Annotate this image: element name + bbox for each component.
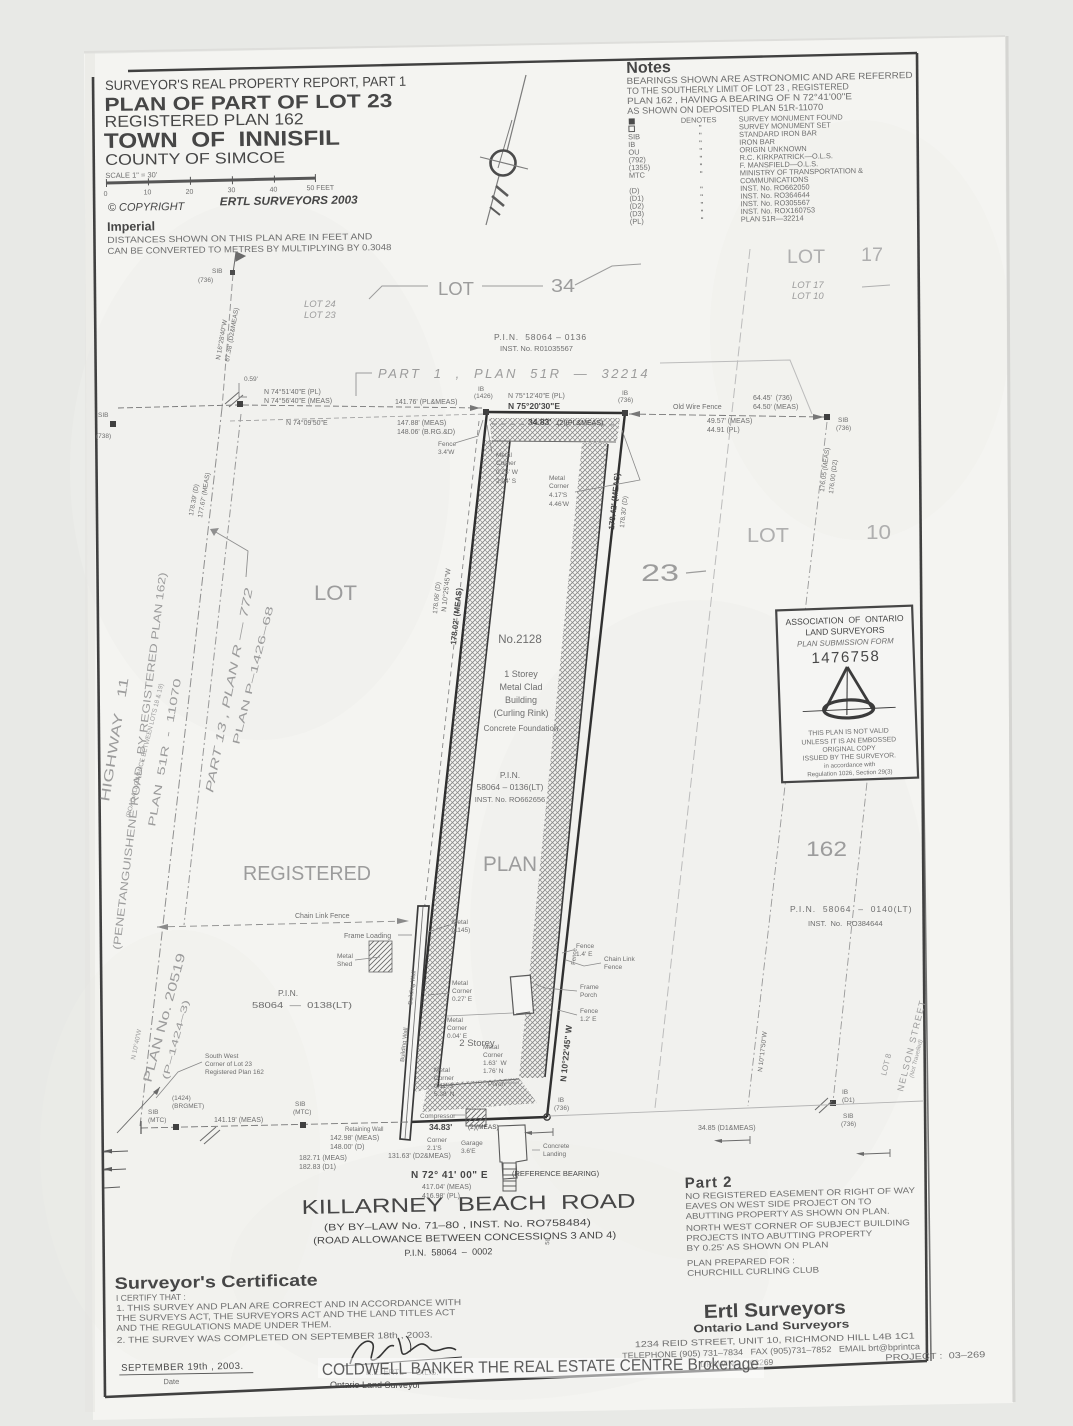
svg-text:4.46'W: 4.46'W — [549, 501, 570, 508]
svg-text:10: 10 — [866, 522, 891, 544]
svg-text:Metal: Metal — [452, 919, 468, 926]
svg-text:0.04' E: 0.04' E — [447, 1033, 468, 1040]
svg-text:182.83 (D1): 182.83 (D1) — [299, 1164, 336, 1171]
svg-text:INST. No. RO662656: INST. No. RO662656 — [475, 795, 545, 804]
svg-text:N 74°56'40"E (MEAS): N 74°56'40"E (MEAS) — [264, 397, 332, 405]
svg-text:Corner: Corner — [549, 483, 570, 490]
svg-text:P.I.N.: P.I.N. — [500, 770, 520, 780]
svg-text:Porch: Porch — [488, 1081, 505, 1088]
svg-text:Corner: Corner — [447, 1025, 468, 1032]
svg-text:(D1): (D1) — [842, 1097, 855, 1104]
svg-text:2.1'S: 2.1'S — [427, 1145, 442, 1152]
svg-text:Registered Plan 162: Registered Plan 162 — [205, 1069, 264, 1076]
svg-text:Compressor: Compressor — [420, 1113, 456, 1120]
svg-text:Metal: Metal — [483, 1044, 499, 1051]
svg-text:N 74°09'50"E: N 74°09'50"E — [286, 419, 328, 427]
svg-text:Metal: Metal — [447, 1017, 463, 1024]
svg-text:Corner: Corner — [452, 988, 473, 995]
svg-text:Metal Clad: Metal Clad — [499, 682, 542, 692]
svg-text:Fence: Fence — [576, 943, 594, 950]
svg-text:Retaining Wall: Retaining Wall — [345, 1127, 383, 1133]
svg-text:P.I.N. 58064 – 0136: P.I.N. 58064 – 0136 — [494, 332, 587, 342]
svg-text:0.11' S: 0.11' S — [434, 1083, 454, 1090]
svg-text:Corner: Corner — [427, 1137, 448, 1144]
svg-text:Garage: Garage — [461, 1140, 483, 1147]
svg-text:64.50' (MEAS): 64.50' (MEAS) — [753, 404, 798, 411]
svg-text:Chain Link: Chain Link — [604, 956, 635, 963]
svg-text:(1424): (1424) — [172, 1095, 191, 1102]
svg-text:SEPTEMBER 19th , 2003.: SEPTEMBER 19th , 2003. — [121, 1361, 244, 1374]
svg-text:SIB: SIB — [212, 268, 222, 275]
svg-text:LOT: LOT — [438, 279, 474, 299]
svg-text:SIB: SIB — [843, 1113, 853, 1120]
svg-text:162: 162 — [806, 838, 847, 861]
svg-text:(REFERENCE BEARING): (REFERENCE BEARING) — [512, 1169, 600, 1178]
svg-text:IB: IB — [842, 1089, 848, 1096]
svg-text:20: 20 — [186, 189, 194, 196]
svg-text:Building: Building — [505, 695, 537, 705]
svg-text:10: 10 — [144, 189, 152, 196]
svg-text:Date: Date — [163, 1377, 179, 1386]
svg-text:34.83': 34.83' — [528, 417, 551, 427]
svg-text:1 Storey: 1 Storey — [504, 669, 538, 679]
svg-text:N 74°51'40"E (PL): N 74°51'40"E (PL) — [264, 388, 321, 396]
svg-text:P.I.N. 58064 – 0140(LT): P.I.N. 58064 – 0140(LT) — [790, 904, 913, 914]
svg-text:50 FEET: 50 FEET — [307, 185, 335, 192]
svg-text:182.71 (MEAS): 182.71 (MEAS) — [299, 1155, 347, 1162]
svg-text:34.85 (D1&MEAS): 34.85 (D1&MEAS) — [698, 1125, 756, 1132]
svg-text:Metal: Metal — [549, 475, 565, 482]
svg-text:(736): (736) — [841, 1121, 856, 1128]
svg-text:Ontario Land Surveyor: Ontario Land Surveyor — [330, 1380, 421, 1390]
svg-text:(MTC): (MTC) — [148, 1117, 166, 1124]
svg-text:ERTL SURVEYORS 2003: ERTL SURVEYORS 2003 — [220, 194, 359, 208]
svg-text:LOT 24: LOT 24 — [304, 299, 336, 310]
svg-text:LOT: LOT — [747, 525, 789, 547]
svg-text:30: 30 — [228, 187, 236, 194]
svg-text:(1145): (1145) — [452, 927, 470, 934]
svg-text:(Curling Rink): (Curling Rink) — [493, 708, 548, 718]
svg-text:1.2' E: 1.2' E — [580, 1016, 597, 1023]
svg-text:SIB: SIB — [148, 1109, 158, 1116]
svg-text:(PL): (PL) — [630, 217, 644, 226]
svg-text:1.4' E: 1.4' E — [576, 951, 593, 958]
svg-text:(1426): (1426) — [474, 393, 493, 400]
svg-text:Fence: Fence — [438, 441, 456, 448]
svg-text:Chain Link Fence: Chain Link Fence — [295, 913, 350, 920]
svg-text:34.83': 34.83' — [429, 1122, 452, 1132]
svg-text:TOWN OF INNISFIL: TOWN OF INNISFIL — [104, 127, 340, 153]
svg-text:N 72° 41' 00" E: N 72° 41' 00" E — [411, 1170, 488, 1181]
svg-text:South West: South West — [205, 1053, 239, 1060]
svg-text:58064 – 0136(LT): 58064 – 0136(LT) — [477, 782, 544, 792]
svg-text:44.91 (PL): 44.91 (PL) — [707, 427, 740, 434]
svg-text:Old Wire Fence: Old Wire Fence — [673, 404, 722, 411]
svg-text:SIB: SIB — [295, 1101, 305, 1108]
svg-text:1.76' N: 1.76' N — [483, 1068, 504, 1075]
svg-text:N 75°12'40"E (PL): N 75°12'40"E (PL) — [508, 392, 565, 400]
svg-text:0.27' E: 0.27' E — [452, 996, 473, 1003]
svg-text:Concrete Foundation: Concrete Foundation — [484, 724, 559, 733]
svg-text:LOT 23: LOT 23 — [304, 310, 336, 321]
svg-text:IB: IB — [478, 386, 484, 393]
svg-text:3.4'W: 3.4'W — [438, 449, 455, 456]
svg-text:141.76' (PL&MEAS): 141.76' (PL&MEAS) — [395, 399, 457, 406]
svg-text:Frame: Frame — [580, 984, 599, 991]
svg-text:IB: IB — [622, 390, 628, 397]
svg-text:23: 23 — [641, 560, 679, 587]
svg-text:(2)(PL&MEAS): (2)(PL&MEAS) — [557, 420, 603, 427]
svg-text:2.94' S: 2.94' S — [496, 478, 517, 485]
svg-text:INST. No. RO384644: INST. No. RO384644 — [808, 919, 883, 928]
svg-text:148.06' (B.RG.&D): 148.06' (B.RG.&D) — [397, 429, 455, 436]
svg-text:1.63' W: 1.63' W — [483, 1060, 508, 1067]
svg-text:© COPYRIGHT: © COPYRIGHT — [108, 201, 186, 214]
svg-text:5.38' N: 5.38' N — [434, 1091, 455, 1098]
svg-text:(736): (736) — [198, 277, 213, 284]
svg-text:SIB: SIB — [838, 417, 848, 424]
svg-text:P.I.N. 58064 – 0002: P.I.N. 58064 – 0002 — [404, 1246, 492, 1258]
svg-text:Corner of Lot 23: Corner of Lot 23 — [205, 1061, 252, 1068]
svg-text:0: 0 — [104, 191, 108, 198]
svg-text:(BRGMET): (BRGMET) — [172, 1103, 204, 1110]
svg-text:417.04' (MEAS): 417.04' (MEAS) — [422, 1184, 471, 1191]
svg-text:147.88' (MEAS): 147.88' (MEAS) — [397, 420, 446, 427]
svg-text:LOT 17: LOT 17 — [792, 280, 824, 291]
svg-text:Corner: Corner — [496, 460, 517, 467]
svg-text:40: 40 — [270, 187, 278, 194]
svg-text:131.63' (D2&MEAS): 131.63' (D2&MEAS) — [388, 1153, 451, 1160]
svg-text:COUNTY OF SIMCOE: COUNTY OF SIMCOE — [105, 149, 285, 169]
svg-text:58064 — 0138(LT): 58064 — 0138(LT) — [252, 1000, 352, 1010]
svg-text:LOT: LOT — [787, 247, 825, 268]
svg-text:Corner: Corner — [434, 1075, 455, 1082]
svg-text:17: 17 — [861, 245, 883, 266]
svg-text:SCALE 1" = 30': SCALE 1" = 30' — [105, 170, 158, 180]
svg-text:141.19' (MEAS): 141.19' (MEAS) — [214, 1117, 263, 1124]
svg-text:(736): (736) — [554, 1105, 569, 1112]
svg-text:1476758: 1476758 — [811, 648, 880, 667]
svg-text:Fence: Fence — [580, 1008, 598, 1015]
svg-text:IB: IB — [558, 1097, 564, 1104]
svg-text:LOT 10: LOT 10 — [792, 291, 824, 302]
svg-text:No.2128: No.2128 — [498, 634, 541, 646]
svg-text:(MTC): (MTC) — [293, 1109, 311, 1116]
svg-text:Metal: Metal — [496, 452, 512, 459]
svg-text:4.17'S: 4.17'S — [549, 492, 568, 499]
svg-text:Metal: Metal — [452, 980, 468, 987]
svg-text:SIB: SIB — [98, 412, 108, 419]
svg-text:INST. No. R01035567: INST. No. R01035567 — [500, 344, 573, 353]
svg-text:P.I.N.: P.I.N. — [278, 988, 298, 998]
svg-text:142.98' (MEAS): 142.98' (MEAS) — [330, 1135, 379, 1142]
svg-text:(738): (738) — [96, 433, 111, 440]
svg-text:148.00' (D): 148.00' (D) — [330, 1144, 364, 1151]
svg-text:34: 34 — [551, 276, 575, 296]
svg-text:0.25' W: 0.25' W — [496, 469, 519, 476]
svg-text:(736): (736) — [618, 397, 633, 404]
svg-text:3.6'E: 3.6'E — [461, 1148, 476, 1155]
svg-text:REGISTERED: REGISTERED — [243, 863, 371, 885]
svg-text:Shed: Shed — [337, 961, 353, 968]
svg-text:Concrete: Concrete — [543, 1143, 570, 1150]
svg-text:Fence: Fence — [604, 964, 622, 971]
svg-text:Metal: Metal — [337, 953, 353, 960]
svg-text:PLAN 51R—32214: PLAN 51R—32214 — [741, 213, 804, 223]
svg-text:49.57' (MEAS): 49.57' (MEAS) — [707, 418, 752, 425]
svg-text:N 75°20'30"E: N 75°20'30"E — [508, 401, 560, 411]
svg-text:Imperial: Imperial — [107, 219, 155, 234]
svg-text:0.59': 0.59' — [244, 376, 258, 383]
svg-text:LOT: LOT — [314, 582, 357, 605]
svg-text:Surveyor's Certificate: Surveyor's Certificate — [115, 1271, 318, 1293]
svg-text:64.45' (736): 64.45' (736) — [753, 395, 792, 402]
svg-text:Corner: Corner — [483, 1052, 504, 1059]
svg-text:(736): (736) — [836, 425, 851, 432]
svg-text:Porch: Porch — [580, 992, 597, 999]
svg-text:Landing: Landing — [543, 1151, 567, 1158]
svg-text:PLAN: PLAN — [483, 853, 537, 876]
svg-text:Frame Loading: Frame Loading — [344, 933, 391, 940]
svg-text:MTC: MTC — [629, 171, 646, 180]
svg-text:PART 1 , PLAN 51R — 3221: PART 1 , PLAN 51R — 32214 — [378, 366, 650, 381]
svg-text:Metal: Metal — [434, 1067, 450, 1074]
